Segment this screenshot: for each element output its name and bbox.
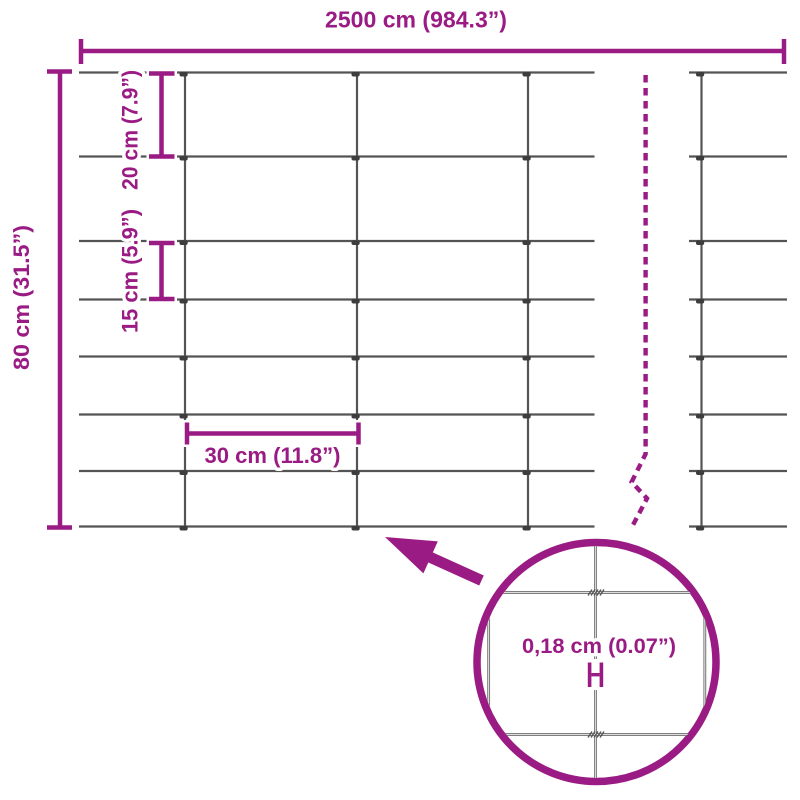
svg-text:0,18 cm (0.07”): 0,18 cm (0.07”) (522, 634, 676, 658)
svg-text:2500 cm (984.3”): 2500 cm (984.3”) (325, 7, 507, 33)
svg-text:30 cm (11.8”): 30 cm (11.8”) (205, 443, 341, 468)
svg-text:15 cm (5.9”): 15 cm (5.9”) (118, 209, 143, 333)
svg-text:80 cm (31.5”): 80 cm (31.5”) (9, 225, 34, 370)
svg-text:20 cm (7.9”): 20 cm (7.9”) (118, 70, 143, 190)
